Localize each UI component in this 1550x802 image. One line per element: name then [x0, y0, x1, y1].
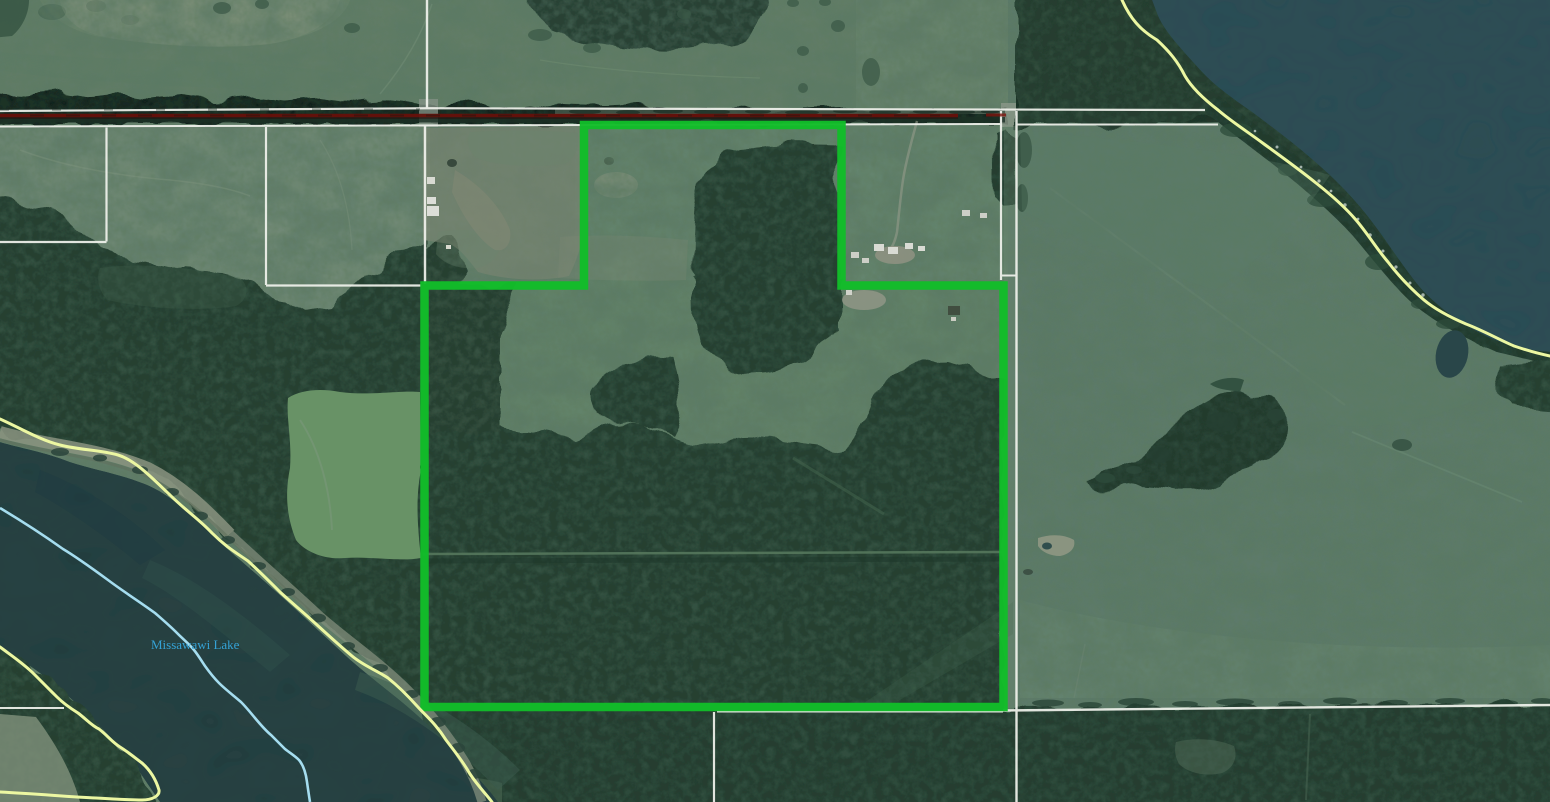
svg-text:Missawawi Lake: Missawawi Lake [151, 637, 240, 652]
